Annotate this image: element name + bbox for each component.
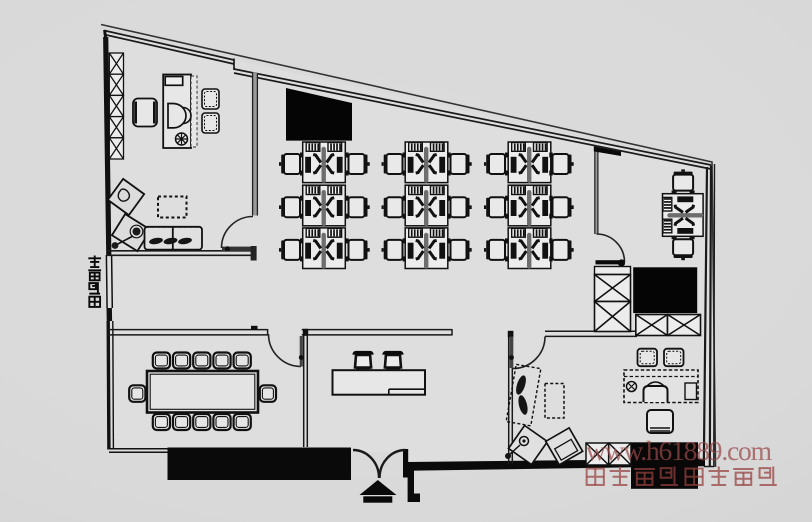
svg-text:www.h61889.com: www.h61889.com [586,435,772,466]
